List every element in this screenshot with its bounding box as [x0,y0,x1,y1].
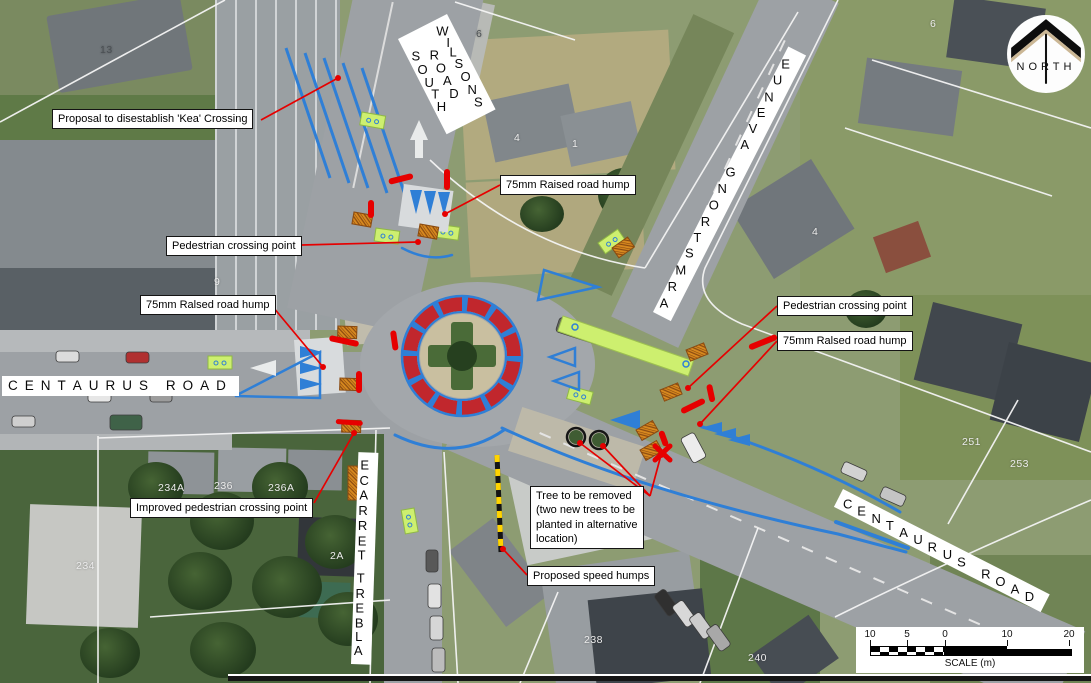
north-arrow: NORTH [1006,14,1086,94]
frame-line [228,676,1091,681]
parcel-number: 2A [330,550,344,562]
scale-bar: 10501020 SCALE (m) [856,627,1084,673]
callout-pedestrian-crossing-right: Pedestrian crossing point [777,296,913,316]
scale-bar-checker [870,646,945,656]
scale-tick-label: 10 [1001,629,1012,640]
callout-raised-hump-right: 75mm Ralsed road hump [777,331,913,351]
scale-bar-solid [945,646,1007,656]
roundabout-marking [402,296,522,416]
scale-tick-label: 5 [904,629,910,640]
parcel-number: 1 [572,138,578,150]
parcel-number: 251 [962,436,981,448]
parcel-number: 236 [214,480,233,492]
parcel-number: 4 [514,132,520,144]
callout-raised-hump-top: 75mm Raised road hump [500,175,636,195]
parcel-number: 9 [214,276,220,288]
callout-proposed-speed-humps: Proposed speed humps [527,566,655,586]
parcel-number: 6 [476,28,482,40]
parcel-number: 4 [812,226,818,238]
scale-tick-label: 10 [864,629,875,640]
north-arrow-graphic [1006,14,1086,94]
parcel-number: 234A [158,482,185,494]
parcel-number: 234 [76,560,95,572]
callout-kea-crossing: Proposal to disestablish 'Kea' Crossing [52,109,253,129]
parcel-number: 6 [930,18,936,30]
parcel-number: 13 [100,44,113,56]
callout-pedestrian-crossing-left: Pedestrian crossing point [166,236,302,256]
scale-label: SCALE (m) [856,658,1084,669]
traffic-scheme-plan: NORTH 10501020 SCALE (m) Proposal to dis… [0,0,1091,683]
scale-bar-graphic [870,646,1072,656]
callout-improved-pedestrian-crossing: Improved pedestrian crossing point [130,498,313,518]
kea-crossing-lines [286,48,406,198]
scale-bar-solid-2 [1007,649,1072,656]
scale-tick-label: 20 [1063,629,1074,640]
callout-raised-hump-left: 75mm Ralsed road hump [140,295,276,315]
parcel-number: 240 [748,652,767,664]
speed-humps-marking [497,455,501,552]
cycle-lane-band [558,316,694,376]
parcel-number: 236A [268,482,295,494]
scale-tick-label: 0 [942,629,948,640]
parcel-number: 238 [584,634,603,646]
parcel-number: 253 [1010,458,1029,470]
callout-tree-removed: Tree to be removed(two new trees to bepl… [530,486,644,549]
road-label-centaurus-road-west: CENTAURUS ROAD [2,376,239,396]
vehicles [12,213,907,672]
north-label: NORTH [1006,61,1086,73]
